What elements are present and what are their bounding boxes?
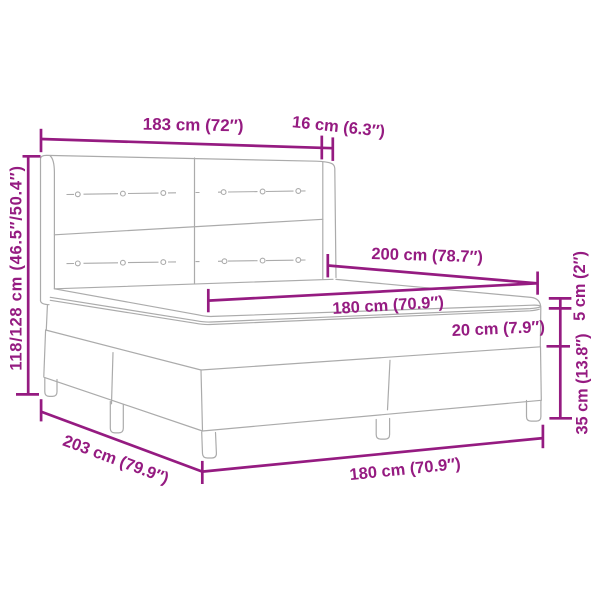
- svg-text:118/128 cm (46.5″/50.4″): 118/128 cm (46.5″/50.4″): [7, 165, 25, 370]
- svg-text:5 cm (2″): 5 cm (2″): [571, 251, 589, 321]
- svg-text:35 cm (13.8″): 35 cm (13.8″): [573, 333, 591, 434]
- svg-text:183 cm (72″): 183 cm (72″): [143, 115, 244, 136]
- svg-text:200 cm (78.7″): 200 cm (78.7″): [371, 245, 483, 266]
